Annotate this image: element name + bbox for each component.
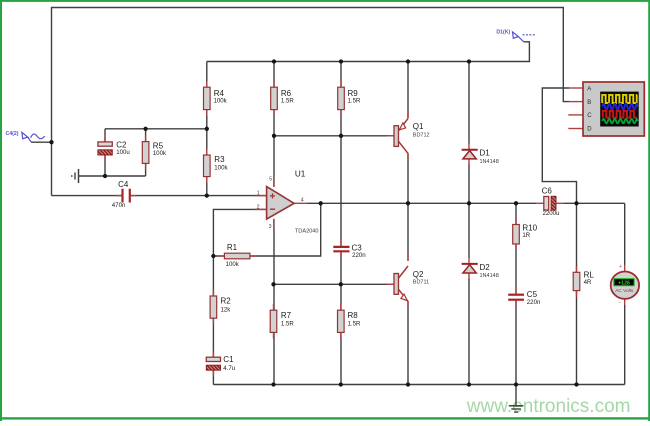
svg-text:Q2: Q2 [413, 270, 424, 279]
svg-text:4: 4 [301, 198, 304, 204]
svg-text:100k: 100k [226, 261, 240, 268]
svg-text:+126: +126 [618, 280, 630, 286]
svg-text:BD712: BD712 [413, 132, 430, 138]
svg-text:R3: R3 [214, 155, 225, 164]
svg-text:1N4148: 1N4148 [480, 159, 499, 165]
svg-text:220n: 220n [527, 299, 541, 306]
svg-text:100k: 100k [214, 164, 228, 171]
svg-text:12k: 12k [221, 306, 232, 313]
svg-text:C6: C6 [542, 186, 553, 195]
svg-text:TDA2040: TDA2040 [295, 228, 319, 234]
svg-text:100u: 100u [116, 149, 130, 156]
svg-text:C1: C1 [223, 355, 234, 364]
svg-text:C4: C4 [118, 180, 129, 189]
svg-text:www.entronics.com: www.entronics.com [466, 396, 631, 417]
svg-text:C: C [587, 113, 592, 119]
svg-text:220n: 220n [352, 252, 366, 259]
svg-text:+: + [619, 264, 622, 270]
svg-text:4R: 4R [584, 279, 592, 286]
svg-text:B: B [587, 100, 591, 106]
svg-text:D1(K): D1(K) [496, 30, 510, 36]
svg-text:D2: D2 [480, 263, 491, 272]
svg-text:C5: C5 [527, 290, 538, 299]
svg-text:BD711: BD711 [413, 279, 429, 285]
svg-text:R2: R2 [221, 297, 232, 306]
svg-text:R1: R1 [227, 243, 238, 252]
svg-text:AC Volts: AC Volts [615, 288, 634, 293]
svg-text:R8: R8 [348, 311, 359, 320]
svg-text:3: 3 [269, 224, 272, 230]
svg-text:D1: D1 [480, 148, 491, 157]
svg-text:1.5R: 1.5R [281, 98, 294, 105]
svg-text:5: 5 [269, 176, 272, 182]
svg-text:U1: U1 [295, 170, 306, 179]
svg-text:100k: 100k [153, 150, 167, 157]
svg-text:470n: 470n [112, 202, 126, 209]
svg-text:R7: R7 [281, 311, 292, 320]
svg-text:1.5R: 1.5R [348, 98, 361, 105]
svg-text:Q1: Q1 [413, 122, 424, 131]
svg-text:2: 2 [257, 205, 260, 211]
svg-text:2200u: 2200u [543, 210, 560, 217]
svg-text:1R: 1R [522, 232, 530, 239]
svg-text:1.5R: 1.5R [348, 320, 361, 327]
svg-text:D: D [587, 127, 592, 133]
svg-text:1N4148: 1N4148 [480, 273, 499, 279]
svg-text:1: 1 [257, 191, 260, 197]
svg-text:4.7u: 4.7u [223, 365, 235, 372]
svg-text:100k: 100k [214, 98, 228, 105]
svg-text:1.5R: 1.5R [281, 320, 294, 327]
svg-text:C4(2): C4(2) [6, 131, 19, 137]
svg-text:A: A [587, 86, 591, 92]
